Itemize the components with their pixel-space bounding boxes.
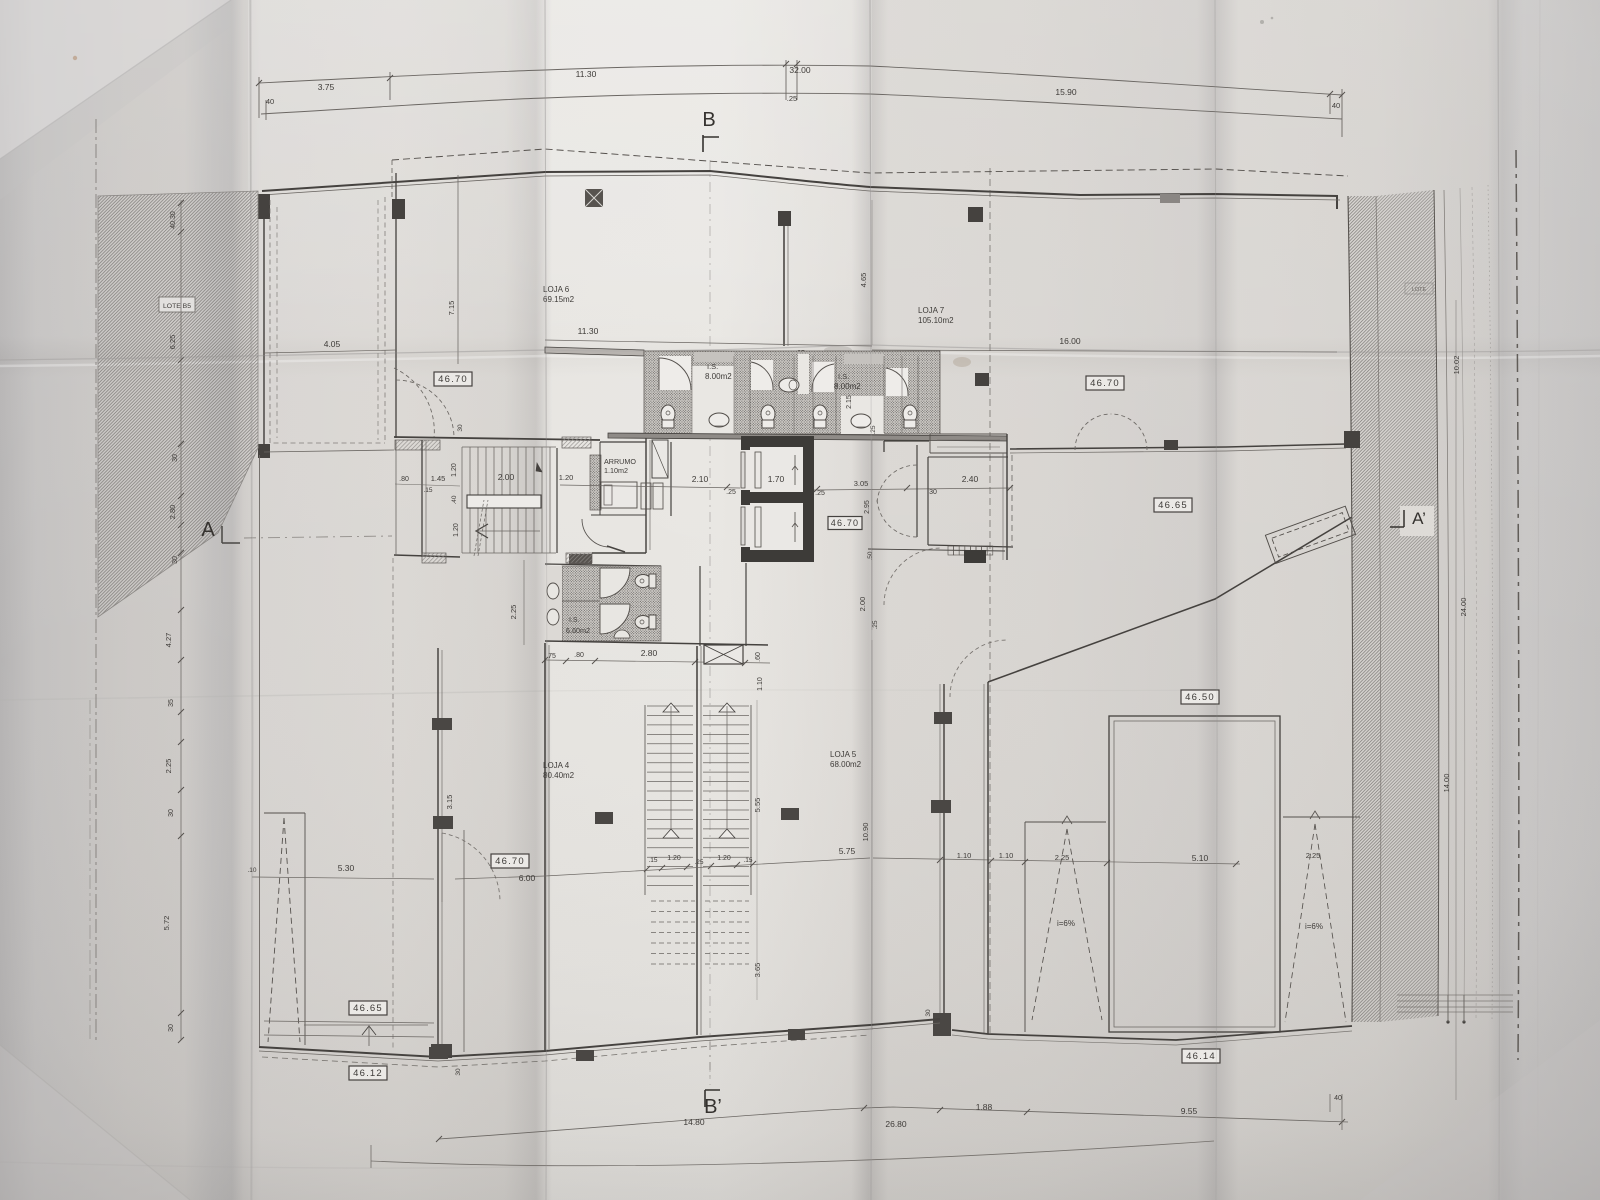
svg-text:LOTE: LOTE (1412, 287, 1427, 293)
svg-text:LOJA 6: LOJA 6 (543, 285, 570, 294)
svg-text:I.S.: I.S. (838, 372, 849, 381)
svg-text:LOJA 5: LOJA 5 (830, 750, 857, 759)
svg-text:3.15: 3.15 (445, 795, 454, 810)
svg-text:B’: B’ (704, 1096, 722, 1118)
svg-text:ARRUMO: ARRUMO (604, 457, 636, 466)
svg-text:46.14: 46.14 (1186, 1051, 1216, 1062)
svg-text:i=6%: i=6% (1305, 922, 1323, 931)
svg-text:4.05: 4.05 (324, 339, 341, 349)
svg-text:46.65: 46.65 (353, 1003, 383, 1014)
svg-text:.25: .25 (726, 489, 736, 496)
svg-text:4.65: 4.65 (859, 273, 868, 288)
svg-text:1.20: 1.20 (717, 855, 731, 862)
svg-text:7.15: 7.15 (447, 301, 456, 316)
svg-text:30: 30 (172, 454, 179, 462)
svg-text:14.00: 14.00 (1442, 774, 1451, 793)
svg-text:.25: .25 (787, 94, 797, 103)
svg-text:15.90: 15.90 (1055, 87, 1077, 97)
svg-text:30: 30 (172, 556, 179, 564)
svg-text:1.20: 1.20 (453, 523, 460, 537)
svg-text:2.25: 2.25 (509, 605, 518, 620)
svg-text:2.40: 2.40 (962, 474, 979, 484)
svg-text:2.15: 2.15 (846, 395, 853, 409)
svg-text:1.10m2: 1.10m2 (604, 466, 628, 475)
svg-text:.50: .50 (867, 551, 874, 560)
svg-text:5.72: 5.72 (162, 916, 171, 931)
svg-text:5.55: 5.55 (753, 798, 762, 813)
svg-text:3.75: 3.75 (318, 82, 335, 92)
svg-text:8.00m2: 8.00m2 (705, 372, 732, 381)
svg-text:.15: .15 (743, 857, 752, 864)
svg-text:30: 30 (457, 424, 464, 432)
svg-text:.25: .25 (815, 490, 825, 497)
svg-text:6.60m2: 6.60m2 (566, 626, 590, 635)
svg-text:I.S.: I.S. (707, 362, 718, 371)
svg-text:8.00m2: 8.00m2 (834, 382, 861, 391)
svg-text:LOJA 7: LOJA 7 (918, 306, 945, 315)
svg-text:46.70: 46.70 (438, 374, 468, 385)
svg-text:1.10: 1.10 (757, 677, 764, 691)
svg-text:1.10: 1.10 (999, 851, 1014, 860)
svg-text:46.70: 46.70 (1090, 378, 1120, 389)
svg-text:11.30: 11.30 (578, 326, 599, 336)
svg-text:2.25: 2.25 (1306, 851, 1321, 860)
svg-text:5.30: 5.30 (338, 863, 355, 873)
svg-text:46.12: 46.12 (353, 1068, 383, 1079)
svg-text:A’: A’ (1412, 509, 1426, 528)
svg-text:105.10m2: 105.10m2 (918, 316, 954, 325)
svg-text:1.45: 1.45 (431, 474, 446, 483)
svg-text:B: B (702, 109, 715, 131)
svg-text:16.00: 16.00 (1059, 336, 1081, 346)
svg-text:40: 40 (1334, 1095, 1342, 1102)
svg-text:.40: .40 (451, 495, 458, 504)
svg-text:11.30: 11.30 (576, 69, 597, 79)
svg-text:A: A (201, 519, 215, 541)
svg-text:.10: .10 (247, 867, 256, 874)
svg-text:30: 30 (168, 1024, 175, 1032)
svg-text:26.80: 26.80 (885, 1119, 907, 1129)
svg-text:1.70: 1.70 (768, 474, 785, 484)
svg-text:2.80: 2.80 (641, 648, 658, 658)
svg-text:1.20: 1.20 (667, 855, 681, 862)
svg-text:2.10: 2.10 (692, 474, 709, 484)
svg-text:1.10: 1.10 (957, 851, 972, 860)
svg-text:46.50: 46.50 (1185, 692, 1215, 703)
svg-text:1.20: 1.20 (451, 463, 458, 477)
svg-text:35: 35 (168, 699, 175, 707)
svg-text:.25: .25 (872, 620, 879, 629)
svg-text:2.00: 2.00 (498, 472, 515, 482)
svg-text:.15: .15 (648, 857, 657, 864)
svg-text:68.00m2: 68.00m2 (830, 760, 862, 769)
svg-text:69.15m2: 69.15m2 (543, 295, 575, 304)
svg-text:1.20: 1.20 (559, 473, 574, 482)
svg-text:24.00: 24.00 (1459, 598, 1468, 617)
svg-text:.80: .80 (574, 652, 584, 659)
svg-text:.60: .60 (755, 652, 762, 662)
svg-text:10.02: 10.02 (1452, 356, 1461, 375)
svg-text:40.30: 40.30 (170, 211, 177, 229)
svg-text:80.40m2: 80.40m2 (543, 771, 575, 780)
svg-text:3.65: 3.65 (753, 963, 762, 978)
svg-text:2.80: 2.80 (168, 505, 177, 520)
svg-text:6.00: 6.00 (519, 873, 536, 883)
svg-text:30: 30 (455, 1068, 462, 1076)
svg-text:5.75: 5.75 (839, 846, 856, 856)
svg-text:14.80: 14.80 (683, 1117, 705, 1127)
svg-text:I.S.: I.S. (569, 617, 580, 624)
svg-text:i=6%: i=6% (1057, 919, 1075, 928)
svg-text:9.55: 9.55 (1181, 1106, 1198, 1116)
svg-text:.25: .25 (694, 859, 703, 866)
svg-text:46.70: 46.70 (831, 518, 860, 528)
svg-text:2.25: 2.25 (164, 759, 173, 774)
svg-text:.75: .75 (546, 653, 556, 660)
svg-text:3.05: 3.05 (854, 479, 869, 488)
svg-text:.80: .80 (399, 476, 409, 483)
svg-text:46.65: 46.65 (1158, 500, 1188, 511)
svg-text:6.25: 6.25 (168, 335, 177, 350)
svg-text:10.90: 10.90 (861, 823, 870, 842)
svg-text:5.10: 5.10 (1192, 853, 1209, 863)
svg-text:.30: .30 (927, 489, 937, 496)
svg-text:4.27: 4.27 (164, 633, 173, 648)
svg-text:LOTE B5: LOTE B5 (163, 303, 191, 310)
svg-text:40: 40 (1332, 101, 1340, 110)
svg-text:32.00: 32.00 (789, 65, 811, 75)
svg-text:30: 30 (925, 1009, 932, 1017)
svg-text:2.95: 2.95 (864, 500, 871, 514)
svg-text:.15: .15 (423, 487, 432, 494)
svg-text:30: 30 (168, 809, 175, 817)
svg-text:1.88: 1.88 (976, 1102, 993, 1112)
svg-text:2.00: 2.00 (858, 597, 867, 612)
svg-text:40: 40 (266, 97, 274, 106)
svg-text:46.70: 46.70 (495, 856, 525, 867)
